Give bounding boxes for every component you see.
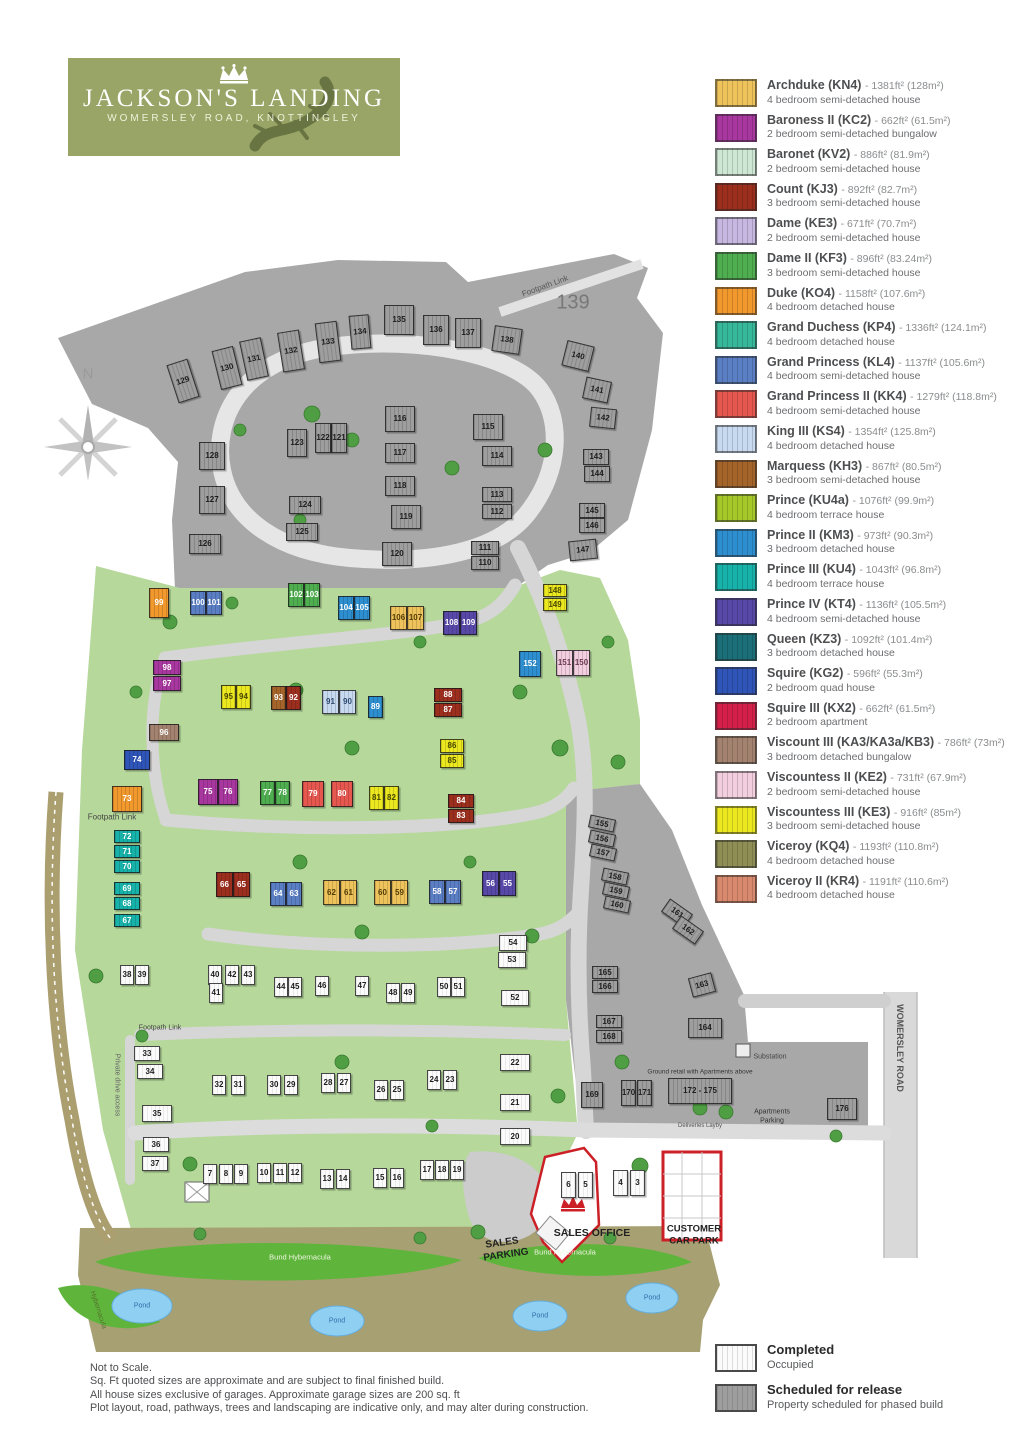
legend-name: Dame II (KF3) - 896ft² (83.24m²) (767, 251, 1020, 267)
legend-name: Baroness II (KC2) - 662ft² (61.5m²) (767, 113, 1020, 129)
plot-117[interactable]: 117 (385, 443, 415, 463)
legend-item: Archduke (KN4) - 1381ft² (128m²)4 bedroo… (715, 78, 1020, 112)
legend-name: Viscount III (KA3/KA3a/KB3) - 786ft² (73… (767, 735, 1020, 751)
legend-desc: 4 bedroom semi-detached house (767, 370, 1020, 382)
plot-92[interactable]: 92 (286, 686, 301, 710)
legend-item: Queen (KZ3) - 1092ft² (101.4m²)3 bedroom… (715, 632, 1020, 666)
plot-38[interactable]: 38 (120, 965, 134, 985)
legend-desc: 3 bedroom detached house (767, 543, 1020, 555)
plot-126[interactable]: 126 (189, 534, 221, 554)
customer-car-park (663, 1152, 721, 1240)
status-swatch (715, 1344, 757, 1372)
legend-desc: 2 bedroom semi-detached house (767, 786, 1020, 798)
plot-15[interactable]: 15 (373, 1168, 387, 1188)
plot-87[interactable]: 87 (434, 703, 462, 717)
womersley-road (884, 992, 917, 1258)
legend-name: Dame (KE3) - 671ft² (70.7m²) (767, 216, 1020, 232)
plot-95[interactable]: 95 (221, 685, 236, 709)
legend-swatch (715, 633, 757, 661)
footnotes: Not to Scale.Sq. Ft quoted sizes are app… (90, 1362, 589, 1416)
plot-111[interactable]: 111 (471, 541, 499, 555)
plot-149[interactable]: 149 (543, 598, 567, 611)
legend-swatch (715, 806, 757, 834)
plot-166[interactable]: 166 (592, 980, 618, 993)
plot-106[interactable]: 106 (390, 606, 407, 630)
legend-swatch (715, 148, 757, 176)
legend-desc: 3 bedroom semi-detached house (767, 197, 1020, 209)
plot-147[interactable]: 147 (568, 539, 598, 562)
plot-150[interactable]: 150 (573, 650, 590, 676)
plot-24[interactable]: 24 (427, 1070, 441, 1090)
plot-37[interactable]: 37 (142, 1156, 168, 1171)
footnote-line: All house sizes exclusive of garages. Ap… (90, 1389, 589, 1402)
plot-110[interactable]: 110 (471, 556, 499, 570)
legend-swatch (715, 460, 757, 488)
plot-30[interactable]: 30 (267, 1075, 281, 1095)
legend-desc: 4 bedroom semi-detached house (767, 94, 1020, 106)
plot-63[interactable]: 63 (286, 882, 302, 906)
status-label: Scheduled for release (767, 1382, 1020, 1399)
plot-89[interactable]: 89 (368, 696, 383, 718)
plot-125[interactable]: 125 (286, 523, 318, 541)
plot-33[interactable]: 33 (134, 1046, 160, 1061)
plot-9[interactable]: 9 (234, 1164, 248, 1184)
plot-104[interactable]: 104 (338, 596, 354, 620)
footnote-line: Not to Scale. (90, 1362, 589, 1375)
plot-66[interactable]: 66 (216, 872, 233, 897)
plot-32[interactable]: 32 (212, 1075, 226, 1095)
plot-52[interactable]: 52 (501, 990, 529, 1006)
plot-137[interactable]: 137 (455, 318, 481, 348)
status-swatch (715, 1384, 757, 1412)
plot-73[interactable]: 73 (112, 786, 142, 812)
legend-desc: 4 bedroom detached house (767, 301, 1020, 313)
plot-112[interactable]: 112 (482, 504, 512, 519)
plot-99[interactable]: 99 (149, 588, 169, 618)
legend-name: King III (KS4) - 1354ft² (125.8m²) (767, 424, 1020, 440)
plot-69[interactable]: 69 (114, 882, 140, 895)
plot-134[interactable]: 134 (349, 314, 372, 350)
plot-56[interactable]: 56 (482, 871, 499, 896)
legend-desc: 2 bedroom semi-detached house (767, 232, 1020, 244)
legend-desc: 4 bedroom terrace house (767, 578, 1020, 590)
plot-22[interactable]: 22 (500, 1054, 530, 1071)
legend-item: Viceroy II (KR4) - 1191ft² (110.6m²)4 be… (715, 874, 1020, 908)
plot-145[interactable]: 145 (579, 503, 605, 518)
plot-108[interactable]: 108 (443, 611, 460, 635)
plot-26[interactable]: 26 (374, 1080, 388, 1100)
legend-item: Squire III (KX2) - 662ft² (61.5m²)2 bedr… (715, 701, 1020, 735)
plot-105[interactable]: 105 (354, 596, 370, 620)
plot-138[interactable]: 138 (491, 325, 522, 355)
plot-151[interactable]: 151 (556, 650, 573, 676)
plot-103[interactable]: 103 (304, 583, 320, 607)
plot-51[interactable]: 51 (451, 977, 465, 997)
legend-desc: 3 bedroom semi-detached house (767, 820, 1020, 832)
legend-desc: 2 bedroom apartment (767, 716, 1020, 728)
plot-76[interactable]: 76 (218, 779, 238, 805)
legend-item: Viscountess III (KE3) - 916ft² (85m²)3 b… (715, 805, 1020, 839)
plot-28[interactable]: 28 (321, 1073, 335, 1093)
plot-11[interactable]: 11 (273, 1163, 287, 1183)
plot-64[interactable]: 64 (270, 882, 286, 906)
plot-97[interactable]: 97 (153, 676, 181, 691)
legend-swatch (715, 667, 757, 695)
legend-item: Grand Duchess (KP4) - 1336ft² (124.1m²)4… (715, 320, 1020, 354)
legend-name: Marquess (KH3) - 867ft² (80.5m²) (767, 459, 1020, 475)
plot-60[interactable]: 60 (374, 880, 391, 905)
legend-item: Viscountess II (KE2) - 731ft² (67.9m²)2 … (715, 770, 1020, 804)
legend-item: Grand Princess (KL4) - 1137ft² (105.6m²)… (715, 355, 1020, 389)
legend-swatch (715, 598, 757, 626)
plot-49[interactable]: 49 (401, 983, 415, 1003)
plot-3[interactable]: 3 (630, 1170, 645, 1196)
plot-167[interactable]: 167 (596, 1015, 622, 1028)
status-desc: Occupied (767, 1359, 1020, 1371)
plot-123[interactable]: 123 (287, 429, 307, 457)
plot-65[interactable]: 65 (233, 872, 250, 897)
plot-27[interactable]: 27 (337, 1073, 351, 1093)
legend-desc: 4 bedroom detached house (767, 336, 1020, 348)
plot-44[interactable]: 44 (274, 977, 288, 997)
status-legend-item: Scheduled for releaseProperty scheduled … (715, 1382, 1020, 1422)
plot-17[interactable]: 17 (420, 1160, 434, 1180)
plot-48[interactable]: 48 (386, 983, 400, 1003)
legend-name: Queen (KZ3) - 1092ft² (101.4m²) (767, 632, 1020, 648)
plot-136[interactable]: 136 (423, 315, 449, 345)
plot-16[interactable]: 16 (390, 1168, 404, 1188)
legend-desc: 3 bedroom detached bungalow (767, 751, 1020, 763)
legend-item: Dame (KE3) - 671ft² (70.7m²)2 bedroom se… (715, 216, 1020, 250)
plot-34[interactable]: 34 (137, 1064, 163, 1079)
footnote-line: Sq. Ft quoted sizes are approximate and … (90, 1375, 589, 1388)
legend-swatch (715, 771, 757, 799)
legend-name: Count (KJ3) - 892ft² (82.7m²) (767, 182, 1020, 198)
plot-127[interactable]: 127 (199, 486, 225, 514)
plot-165[interactable]: 165 (592, 966, 618, 979)
legend-swatch (715, 252, 757, 280)
legend-item: Prince (KU4a) - 1076ft² (99.9m²)4 bedroo… (715, 493, 1020, 527)
bund-band (78, 1226, 720, 1352)
plot-124[interactable]: 124 (289, 496, 321, 514)
legend-item: Viceroy (KQ4) - 1193ft² (110.8m²)4 bedro… (715, 839, 1020, 873)
plot-6[interactable]: 6 (561, 1172, 576, 1198)
plot-13[interactable]: 13 (320, 1169, 334, 1189)
legend-name: Viceroy II (KR4) - 1191ft² (110.6m²) (767, 874, 1020, 890)
legend-swatch (715, 736, 757, 764)
legend-swatch (715, 529, 757, 557)
legend-desc: 3 bedroom semi-detached house (767, 474, 1020, 486)
plot-91[interactable]: 91 (322, 690, 339, 714)
plot-8[interactable]: 8 (219, 1164, 233, 1184)
plot-21[interactable]: 21 (500, 1094, 530, 1111)
legend-swatch (715, 390, 757, 418)
legend-name: Viceroy (KQ4) - 1193ft² (110.8m²) (767, 839, 1020, 855)
plot-171[interactable]: 171 (637, 1080, 652, 1106)
plot-93[interactable]: 93 (271, 686, 286, 710)
substation-box (736, 1044, 750, 1057)
plot-116[interactable]: 116 (385, 406, 415, 432)
legend-swatch (715, 702, 757, 730)
site-title: JACKSON'S LANDING (68, 85, 400, 113)
legend-name: Prince (KU4a) - 1076ft² (99.9m²) (767, 493, 1020, 509)
legend-desc: 4 bedroom detached house (767, 440, 1020, 452)
legend-swatch (715, 79, 757, 107)
legend-swatch (715, 321, 757, 349)
plot-101[interactable]: 101 (206, 591, 222, 615)
plot-75[interactable]: 75 (198, 779, 218, 805)
plot-29[interactable]: 29 (284, 1075, 298, 1095)
legend-desc: 4 bedroom semi-detached house (767, 613, 1020, 625)
legend-swatch (715, 217, 757, 245)
plot-10[interactable]: 10 (257, 1163, 271, 1183)
legend-item: Baronet (KV2) - 886ft² (81.9m²)2 bedroom… (715, 147, 1020, 181)
status-desc: Property scheduled for phased build (767, 1399, 1020, 1411)
plot-88[interactable]: 88 (434, 688, 462, 702)
legend-item: Grand Princess II (KK4) - 1279ft² (118.8… (715, 389, 1020, 423)
legend-desc: 2 bedroom semi-detached bungalow (767, 128, 1020, 140)
plot-4[interactable]: 4 (613, 1170, 628, 1196)
plot-18[interactable]: 18 (435, 1160, 449, 1180)
legend-name: Baronet (KV2) - 886ft² (81.9m²) (767, 147, 1020, 163)
plot-19[interactable]: 19 (450, 1160, 464, 1180)
legend-name: Grand Princess II (KK4) - 1279ft² (118.8… (767, 389, 1020, 405)
plot-98[interactable]: 98 (153, 660, 181, 675)
plot-120[interactable]: 120 (382, 542, 412, 566)
legend-item: Viscount III (KA3/KA3a/KB3) - 786ft² (73… (715, 735, 1020, 769)
plot-107[interactable]: 107 (407, 606, 424, 630)
plot-45[interactable]: 45 (288, 977, 302, 997)
legend-item: Dame II (KF3) - 896ft² (83.24m²)3 bedroo… (715, 251, 1020, 285)
plot-20[interactable]: 20 (500, 1128, 530, 1145)
legend-desc: 3 bedroom detached house (767, 647, 1020, 659)
plot-14[interactable]: 14 (336, 1169, 350, 1189)
plot-7[interactable]: 7 (203, 1164, 217, 1184)
compass-icon (44, 405, 132, 481)
plot-40[interactable]: 40 (208, 965, 222, 985)
plot-55[interactable]: 55 (499, 871, 516, 896)
plot-144[interactable]: 144 (584, 466, 610, 482)
plot-148[interactable]: 148 (543, 584, 567, 597)
plot-128[interactable]: 128 (199, 442, 225, 470)
plot-86[interactable]: 86 (440, 739, 464, 753)
plot-47[interactable]: 47 (355, 976, 369, 996)
plot-80[interactable]: 80 (331, 781, 353, 807)
plot-5[interactable]: 5 (578, 1172, 593, 1198)
legend-item: Squire (KG2) - 596ft² (55.3m²)2 bedroom … (715, 666, 1020, 700)
legend-item: Duke (KO4) - 1158ft² (107.6m²)4 bedroom … (715, 286, 1020, 320)
legend-name: Viscountess III (KE3) - 916ft² (85m²) (767, 805, 1020, 821)
plot-152[interactable]: 152 (519, 651, 541, 677)
plot-122[interactable]: 122 (315, 423, 331, 453)
plot-172-175[interactable]: 172 - 175 (668, 1078, 732, 1104)
plot-133[interactable]: 133 (315, 321, 342, 363)
plot-114[interactable]: 114 (482, 446, 512, 466)
plot-96[interactable]: 96 (149, 724, 179, 741)
plot-42[interactable]: 42 (225, 965, 239, 985)
legend-desc: 4 bedroom semi-detached house (767, 405, 1020, 417)
legend-desc: 2 bedroom quad house (767, 682, 1020, 694)
legend-name: Grand Duchess (KP4) - 1336ft² (124.1m²) (767, 320, 1020, 336)
legend-item: King III (KS4) - 1354ft² (125.8m²)4 bedr… (715, 424, 1020, 458)
plot-85[interactable]: 85 (440, 754, 464, 768)
plot-50[interactable]: 50 (437, 977, 451, 997)
plot-67[interactable]: 67 (114, 914, 140, 927)
legend-item: Baroness II (KC2) - 662ft² (61.5m²)2 bed… (715, 113, 1020, 147)
plot-46[interactable]: 46 (315, 976, 329, 996)
legend-name: Prince II (KM3) - 973ft² (90.3m²) (767, 528, 1020, 544)
plot-25[interactable]: 25 (390, 1080, 404, 1100)
plot-102[interactable]: 102 (288, 583, 304, 607)
legend-item: Marquess (KH3) - 867ft² (80.5m²)3 bedroo… (715, 459, 1020, 493)
plot-135[interactable]: 135 (384, 305, 414, 335)
plot-169[interactable]: 169 (581, 1082, 603, 1108)
legend-item: Prince II (KM3) - 973ft² (90.3m²)3 bedro… (715, 528, 1020, 562)
legend-item: Count (KJ3) - 892ft² (82.7m²)3 bedroom s… (715, 182, 1020, 216)
plot-109[interactable]: 109 (460, 611, 477, 635)
plot-53[interactable]: 53 (498, 952, 526, 968)
plot-31[interactable]: 31 (231, 1075, 245, 1095)
plot-74[interactable]: 74 (124, 750, 150, 770)
plot-71[interactable]: 71 (114, 845, 140, 858)
legend-desc: 4 bedroom detached house (767, 855, 1020, 867)
plot-68[interactable]: 68 (114, 897, 140, 910)
plot-100[interactable]: 100 (190, 591, 206, 615)
legend-name: Viscountess II (KE2) - 731ft² (67.9m²) (767, 770, 1020, 786)
legend-desc: 2 bedroom semi-detached house (767, 163, 1020, 175)
plot-115[interactable]: 115 (473, 414, 503, 440)
status-label: Completed (767, 1342, 1020, 1359)
plot-83[interactable]: 83 (448, 809, 474, 823)
plot-36[interactable]: 36 (143, 1137, 169, 1152)
plot-70[interactable]: 70 (114, 860, 140, 873)
legend-item: Prince IV (KT4) - 1136ft² (105.5m²)4 bed… (715, 597, 1020, 631)
plot-59[interactable]: 59 (391, 880, 408, 905)
plot-35[interactable]: 35 (142, 1105, 172, 1122)
plot-82[interactable]: 82 (384, 786, 399, 810)
legend-name: Squire III (KX2) - 662ft² (61.5m²) (767, 701, 1020, 717)
legend-swatch (715, 425, 757, 453)
plot-62[interactable]: 62 (323, 880, 340, 905)
legend-item: Prince III (KU4) - 1043ft² (96.8m²)4 bed… (715, 562, 1020, 596)
legend-swatch (715, 287, 757, 315)
legend-swatch (715, 563, 757, 591)
plot-43[interactable]: 43 (241, 965, 255, 985)
status-legend-item: CompletedOccupied (715, 1342, 1020, 1382)
scheduled-area-north (58, 254, 663, 590)
plot-41[interactable]: 41 (209, 983, 223, 1003)
legend-swatch (715, 875, 757, 903)
legend-name: Duke (KO4) - 1158ft² (107.6m²) (767, 286, 1020, 302)
plot-39[interactable]: 39 (135, 965, 149, 985)
plot-54[interactable]: 54 (499, 935, 527, 951)
legend-desc: 4 bedroom detached house (767, 889, 1020, 901)
plot-94[interactable]: 94 (236, 685, 251, 709)
legend-swatch (715, 114, 757, 142)
plot-84[interactable]: 84 (448, 794, 474, 808)
plot-57[interactable]: 57 (445, 880, 461, 904)
plot-12[interactable]: 12 (288, 1163, 302, 1183)
garage-block (185, 1182, 209, 1202)
legend-swatch (715, 840, 757, 868)
legend-swatch (715, 183, 757, 211)
plot-78[interactable]: 78 (275, 781, 290, 805)
plot-143[interactable]: 143 (583, 449, 609, 465)
plot-81[interactable]: 81 (369, 786, 384, 810)
plot-90[interactable]: 90 (339, 690, 356, 714)
legend-name: Grand Princess (KL4) - 1137ft² (105.6m²) (767, 355, 1020, 371)
legend-swatch (715, 494, 757, 522)
legend-name: Prince IV (KT4) - 1136ft² (105.5m²) (767, 597, 1020, 613)
legend-swatch (715, 356, 757, 384)
legend-name: Squire (KG2) - 596ft² (55.3m²) (767, 666, 1020, 682)
plot-164[interactable]: 164 (688, 1018, 722, 1038)
legend-desc: 4 bedroom terrace house (767, 509, 1020, 521)
plot-142[interactable]: 142 (589, 407, 617, 430)
plot-61[interactable]: 61 (340, 880, 357, 905)
plot-168[interactable]: 168 (596, 1030, 622, 1043)
plot-176[interactable]: 176 (827, 1098, 857, 1120)
plot-146[interactable]: 146 (579, 518, 605, 533)
site-subtitle: WOMERSLEY ROAD, KNOTTINGLEY (68, 113, 400, 124)
plot-118[interactable]: 118 (385, 476, 415, 496)
plot-23[interactable]: 23 (443, 1070, 457, 1090)
legend-desc: 3 bedroom semi-detached house (767, 267, 1020, 279)
plot-113[interactable]: 113 (482, 487, 512, 502)
legend-name: Prince III (KU4) - 1043ft² (96.8m²) (767, 562, 1020, 578)
legend-name: Archduke (KN4) - 1381ft² (128m²) (767, 78, 1020, 94)
plot-170[interactable]: 170 (621, 1080, 636, 1106)
plot-77[interactable]: 77 (260, 781, 275, 805)
footnote-line: Plot layout, road, pathways, trees and l… (90, 1402, 589, 1415)
plot-121[interactable]: 121 (331, 423, 347, 453)
plot-58[interactable]: 58 (429, 880, 445, 904)
plot-119[interactable]: 119 (391, 505, 421, 529)
plot-79[interactable]: 79 (302, 781, 324, 807)
plot-72[interactable]: 72 (114, 830, 140, 843)
